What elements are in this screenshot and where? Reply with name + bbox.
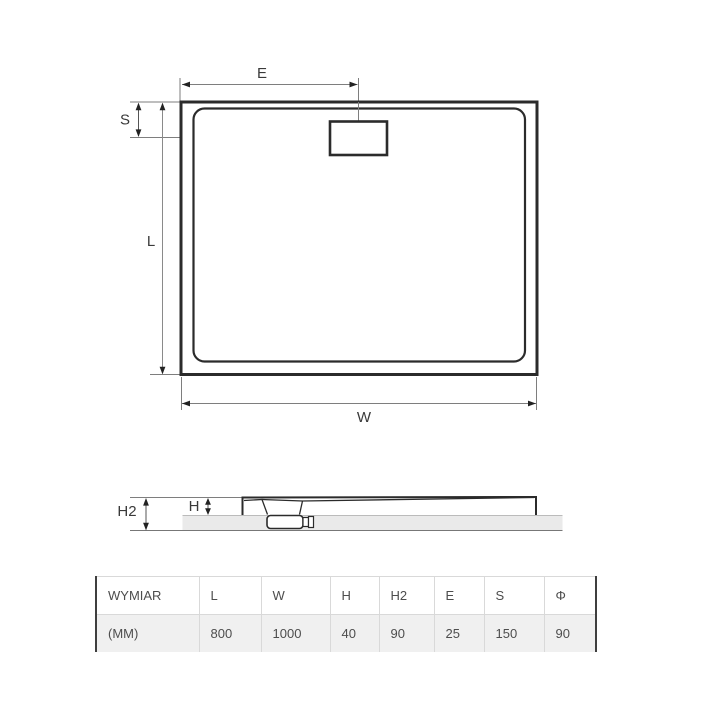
side-view: H2 H xyxy=(117,497,562,531)
value-w: 1000 xyxy=(261,615,330,653)
h2-label: H2 xyxy=(117,503,136,520)
s-label: S xyxy=(120,112,130,129)
drain-box xyxy=(330,122,387,156)
l-label: L xyxy=(147,233,155,250)
value-h2: 90 xyxy=(379,615,434,653)
h2-arrow-up-icon xyxy=(143,498,149,506)
header-wymiar: WYMIAR xyxy=(96,577,199,615)
header-h2: H2 xyxy=(379,577,434,615)
technical-drawing: E S L xyxy=(0,0,720,560)
trap-coupling xyxy=(309,517,314,528)
value-phi: 90 xyxy=(544,615,596,653)
dimensions-table-grid: WYMIAR L W H H2 E S Φ (MM) 800 1000 40 9… xyxy=(95,576,597,652)
dimension-l: L xyxy=(147,103,180,375)
e-arrow-left-icon xyxy=(182,82,190,88)
h-arrow-down-icon xyxy=(205,508,211,515)
e-arrow-right-icon xyxy=(350,82,358,88)
table-values-row: (MM) 800 1000 40 90 25 150 90 xyxy=(96,615,596,653)
s-arrow-down-icon xyxy=(136,129,142,137)
dimension-h: H xyxy=(189,498,211,515)
drain-trap xyxy=(267,516,314,529)
s-arrow-up-icon xyxy=(136,103,142,111)
value-s: 150 xyxy=(484,615,544,653)
value-unit: (MM) xyxy=(96,615,199,653)
w-arrow-right-icon xyxy=(528,401,536,407)
l-arrow-down-icon xyxy=(160,367,166,375)
w-label: W xyxy=(357,409,372,426)
header-s: S xyxy=(484,577,544,615)
header-e: E xyxy=(434,577,484,615)
dimension-w: W xyxy=(182,377,537,426)
header-h: H xyxy=(330,577,379,615)
h2-arrow-down-icon xyxy=(143,523,149,531)
shower-tray-dimension-sheet: E S L xyxy=(0,0,720,720)
header-w: W xyxy=(261,577,330,615)
h-label: H xyxy=(189,498,200,515)
trap-pipe xyxy=(303,518,309,527)
header-phi: Φ xyxy=(544,577,596,615)
table-header-row: WYMIAR L W H H2 E S Φ xyxy=(96,577,596,615)
value-e: 25 xyxy=(434,615,484,653)
value-l: 800 xyxy=(199,615,261,653)
floor-band xyxy=(183,516,563,531)
value-h: 40 xyxy=(330,615,379,653)
header-l: L xyxy=(199,577,261,615)
trap-body xyxy=(267,516,303,529)
dimensions-table: WYMIAR L W H H2 E S Φ (MM) 800 1000 40 9… xyxy=(95,576,595,652)
h-arrow-up-icon xyxy=(205,498,211,505)
l-arrow-up-icon xyxy=(160,103,166,111)
e-label: E xyxy=(257,65,267,82)
w-arrow-left-icon xyxy=(182,401,190,407)
top-view: E S L xyxy=(120,65,537,426)
